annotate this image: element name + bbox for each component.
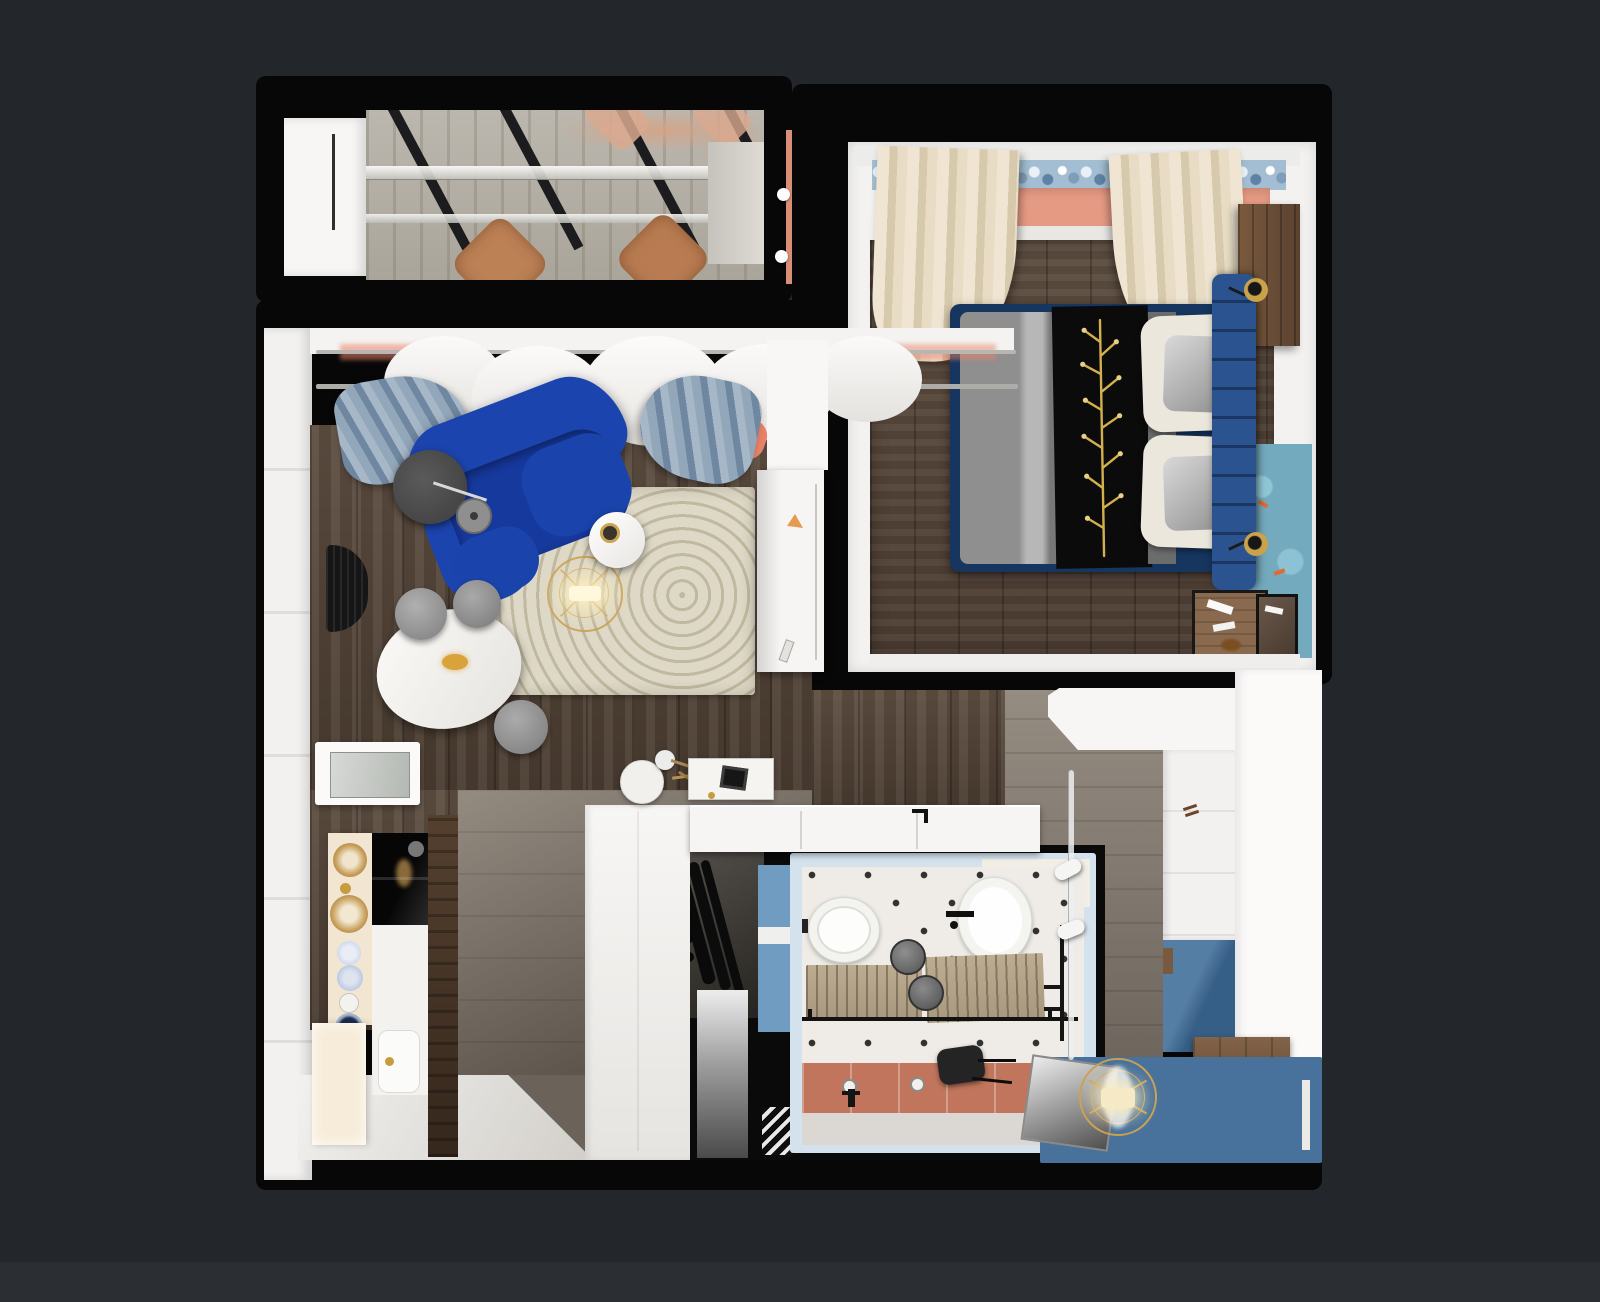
tall-white-cabinet [585, 805, 690, 1160]
gray-pouf [494, 700, 548, 754]
cabinet-seam [637, 811, 639, 1151]
amber-glass-plate [333, 843, 367, 877]
gold-knob [340, 883, 351, 894]
amber-glass-plate [330, 895, 368, 933]
rail-knob [775, 250, 788, 263]
balcony-table [708, 142, 764, 264]
wood-floor-extension [812, 690, 1005, 808]
black-glass-oven-panel [372, 833, 429, 925]
balcony-deck [366, 110, 764, 280]
towel-hook [1044, 1007, 1062, 1011]
black-faucet [924, 809, 928, 823]
towel-hook [1044, 985, 1062, 989]
glass-reflection-dot [408, 841, 424, 857]
glass-reflection [396, 859, 412, 887]
glass-wall-cabinet [315, 742, 420, 805]
apartment-floor-plan [0, 0, 1600, 1302]
side-rail [1060, 925, 1064, 1041]
white-counter-island [690, 805, 1040, 852]
balcony-cabinet [284, 118, 368, 276]
balcony-rail [366, 166, 764, 180]
faucet-knob [950, 921, 958, 929]
cream-shelf-column [328, 833, 372, 1025]
hall-right-wall-block [1235, 670, 1322, 1075]
remote-control [779, 639, 795, 663]
gold-dot-decor [708, 792, 715, 799]
caged-fan-light [1079, 1058, 1157, 1136]
frosted-glass-front [330, 752, 410, 798]
partition-wall-block [767, 340, 828, 470]
towel-rail [802, 1017, 1078, 1021]
blue-bowl [337, 965, 363, 991]
triangle-doormat [762, 1107, 793, 1155]
white-plate [339, 993, 359, 1013]
wardrobe-handle [1185, 810, 1199, 817]
glass-roof-beam [383, 110, 472, 250]
dark-wood-side-panel [428, 815, 458, 1157]
white-wall-sliver [1302, 1080, 1310, 1150]
lamp-bulb [470, 512, 478, 520]
wall-sconce [1244, 278, 1268, 302]
balcony [256, 76, 792, 302]
sheer-puff [812, 336, 922, 422]
gold-table-decor [442, 654, 468, 670]
kitchen-sink [378, 1030, 420, 1093]
wall-notch [758, 927, 791, 944]
chandelier-glow [569, 586, 601, 601]
rail-knob [777, 188, 790, 201]
wood-interior-sliver [1163, 948, 1173, 974]
gray-pouf [395, 588, 447, 640]
gray-stool [890, 939, 926, 975]
entry-door-niche [697, 990, 748, 1158]
gold-tap [385, 1057, 394, 1066]
arc-lamp-shade [456, 498, 492, 534]
balcony-rail [366, 214, 764, 223]
orange-decor [787, 514, 803, 528]
rail-bracket [808, 1009, 812, 1021]
gray-pouf [453, 580, 501, 628]
hall-top-wall [1048, 688, 1235, 750]
left-white-wall [264, 328, 312, 1180]
floor-tap-bar [842, 1091, 860, 1095]
blue-wall-strip [758, 944, 791, 1032]
photo-frame [720, 765, 749, 790]
wardrobe-white-front [1163, 750, 1235, 940]
candle [600, 523, 620, 543]
counter-seam [800, 811, 802, 849]
blue-bowl [337, 941, 361, 965]
cream-base-cabinet [312, 1023, 366, 1145]
main-area [256, 300, 1322, 1190]
toilet [808, 897, 880, 963]
flush-plate [802, 919, 808, 933]
decor-tray [688, 758, 774, 800]
cabinet-seam [332, 134, 335, 230]
wardrobe-blue-front [1163, 940, 1235, 1052]
backdrop-strip [0, 1262, 1600, 1302]
floor-drain [910, 1077, 925, 1092]
counter-seam [916, 811, 918, 849]
gray-stool [908, 975, 944, 1011]
track-light-rail [1068, 770, 1074, 1060]
white-console [757, 470, 824, 672]
stool-leg [978, 1059, 1016, 1062]
blue-wall-strip [758, 865, 791, 927]
black-faucet [946, 911, 974, 917]
fan-light-glow [1101, 1088, 1135, 1108]
glass-streak [372, 877, 429, 880]
console-edge [815, 484, 817, 660]
